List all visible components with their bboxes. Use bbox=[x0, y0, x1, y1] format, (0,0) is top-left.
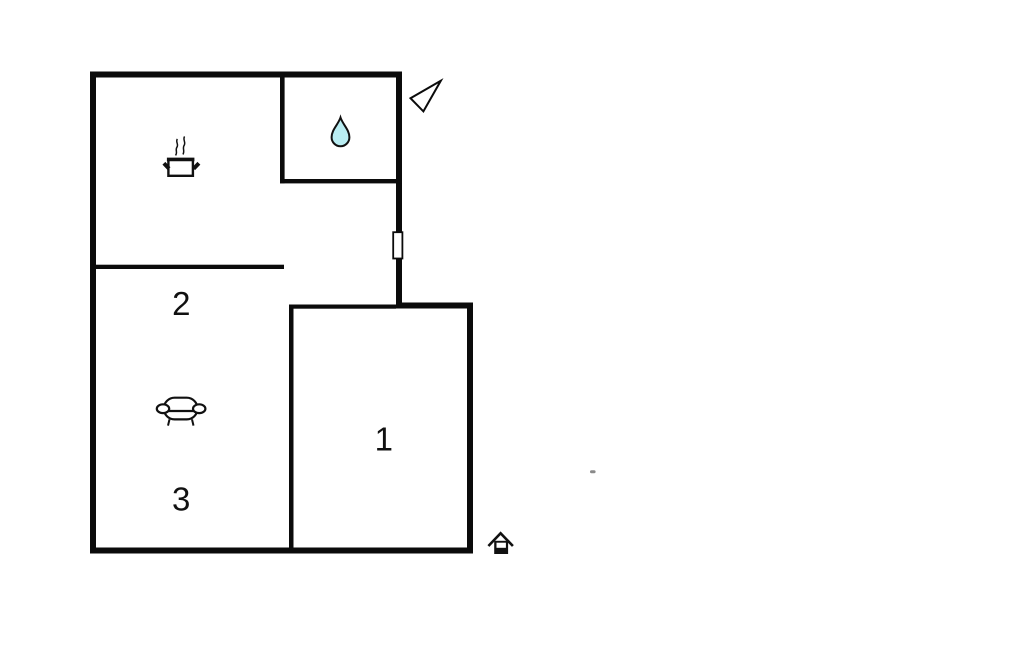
svg-text:2: 2 bbox=[172, 285, 190, 322]
svg-text:3: 3 bbox=[172, 481, 190, 518]
svg-text:1: 1 bbox=[375, 420, 393, 457]
